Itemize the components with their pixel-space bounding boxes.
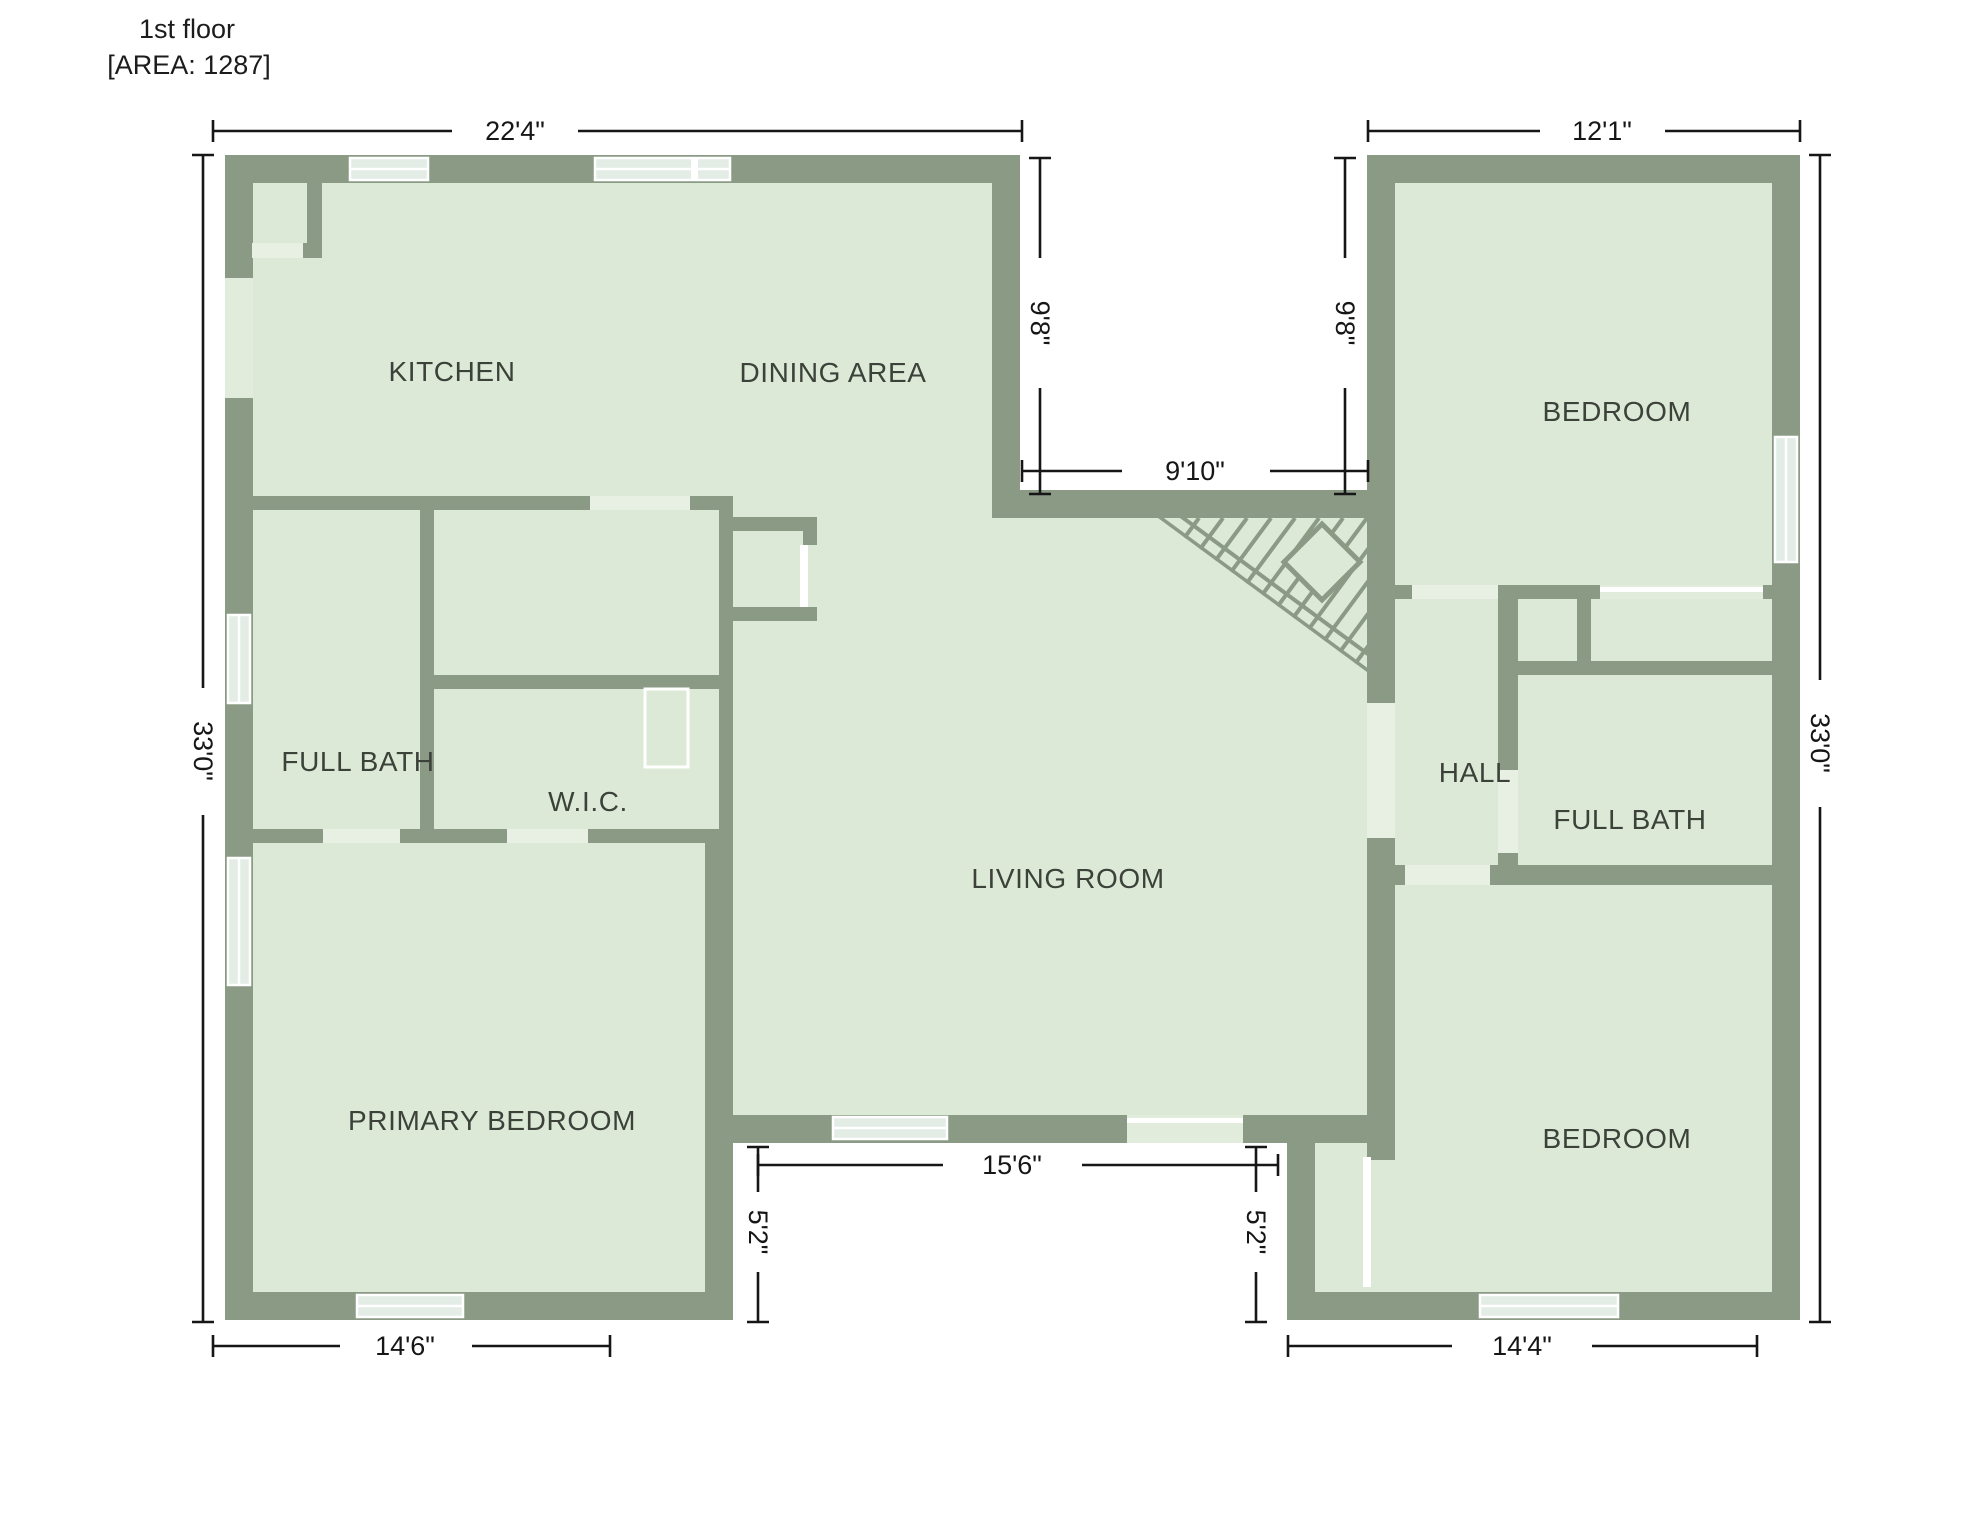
dim-notch-left-height: 9'8"	[1025, 158, 1055, 494]
floor-plan-page: 1st floor [AREA: 1287]	[0, 0, 1974, 1536]
wall-cubby-bottom-left	[225, 243, 252, 258]
wall-bath-right-top	[1498, 661, 1777, 675]
door-full-bath-left	[323, 829, 400, 843]
closet-slider-door-top	[1600, 587, 1763, 592]
kitchen-left-opening	[225, 278, 253, 398]
dim-right-height: 33'0"	[1805, 155, 1835, 1322]
dim-bottom-left-width: 14'6"	[213, 1331, 610, 1361]
door-bedroom-top-right	[1412, 585, 1498, 599]
room-label-dining: DINING AREA	[739, 357, 926, 388]
br-closet-door	[1363, 1157, 1371, 1287]
room-label-full-bath-right: FULL BATH	[1553, 804, 1706, 835]
floor-title: 1st floor	[139, 14, 235, 44]
window-living-bottom	[833, 1117, 947, 1139]
window-primary-bedroom-bottom	[357, 1295, 463, 1317]
wall-dining-closet-bottom	[733, 607, 817, 621]
svg-text:9'8": 9'8"	[1330, 301, 1360, 346]
door-wic	[507, 829, 588, 843]
dim-notch-width: 9'10"	[1022, 456, 1368, 486]
dim-left-height: 33'0"	[188, 155, 218, 1322]
svg-text:33'0": 33'0"	[1805, 713, 1835, 773]
wall-primary-bedroom-right	[705, 829, 733, 1143]
floor-plan: 1st floor [AREA: 1287]	[0, 0, 1974, 1536]
wall-dining-side	[719, 496, 733, 843]
dim-notch-right-height: 9'8"	[1330, 158, 1360, 494]
window-bedroom-right	[1775, 437, 1797, 562]
door-cubby	[252, 243, 303, 258]
wall-bath-wic	[420, 503, 434, 836]
door-bedroom-bottom-right	[1405, 865, 1490, 885]
room-label-primary-bedroom: PRIMARY BEDROOM	[348, 1105, 636, 1136]
room-label-kitchen: KITCHEN	[388, 356, 515, 387]
svg-text:14'4": 14'4"	[1492, 1331, 1552, 1361]
patio-slider-door	[1127, 1118, 1243, 1123]
dining-closet-door	[800, 545, 808, 607]
door-kitchen-room	[590, 496, 690, 510]
svg-text:9'10": 9'10"	[1165, 456, 1225, 486]
room-label-bedroom-bottom: BEDROOM	[1543, 1123, 1692, 1154]
window-dining-top	[595, 158, 730, 180]
dim-bottom-middle-width: 15'6"	[758, 1150, 1278, 1180]
window-bath-left	[228, 615, 250, 703]
room-label-hall: HALL	[1439, 757, 1511, 788]
svg-text:5'2": 5'2"	[1241, 1210, 1271, 1255]
dim-top-right-width: 12'1"	[1368, 116, 1800, 146]
svg-text:5'2": 5'2"	[743, 1210, 773, 1255]
window-primary-bedroom-left	[228, 858, 250, 985]
svg-text:12'1": 12'1"	[1572, 116, 1632, 146]
wall-bath-block-bottom	[225, 829, 733, 843]
wall-wic-top	[434, 675, 733, 689]
wall-cubby-bottom-right	[303, 243, 322, 258]
dim-step-left-height: 5'2"	[743, 1147, 773, 1322]
floor-bottom-right-block	[1315, 1143, 1772, 1292]
window-bedroom-bottom	[1480, 1295, 1618, 1317]
room-label-living: LIVING ROOM	[971, 863, 1164, 894]
dim-step-right-height: 5'2"	[1241, 1147, 1271, 1322]
svg-text:15'6": 15'6"	[982, 1150, 1042, 1180]
wic-shelf-fixture	[645, 689, 688, 767]
room-label-wic: W.I.C.	[548, 786, 628, 817]
dim-bottom-right-width: 14'4"	[1288, 1331, 1757, 1361]
plan-title: 1st floor [AREA: 1287]	[107, 14, 271, 80]
window-kitchen-top	[350, 158, 428, 180]
svg-text:14'6": 14'6"	[375, 1331, 435, 1361]
room-label-full-bath-left: FULL BATH	[281, 746, 434, 777]
floor-living-room	[733, 518, 1367, 1115]
svg-text:22'4": 22'4"	[485, 116, 545, 146]
area-label: [AREA: 1287]	[107, 50, 271, 80]
wall-dining-closet-stub	[803, 517, 817, 545]
svg-text:9'8": 9'8"	[1025, 301, 1055, 346]
room-label-bedroom-top: BEDROOM	[1543, 396, 1692, 427]
dim-top-left-width: 22'4"	[213, 116, 1022, 146]
opening-living-hall	[1367, 703, 1395, 838]
wall-cubby-right	[307, 155, 322, 258]
svg-text:33'0": 33'0"	[188, 721, 218, 781]
